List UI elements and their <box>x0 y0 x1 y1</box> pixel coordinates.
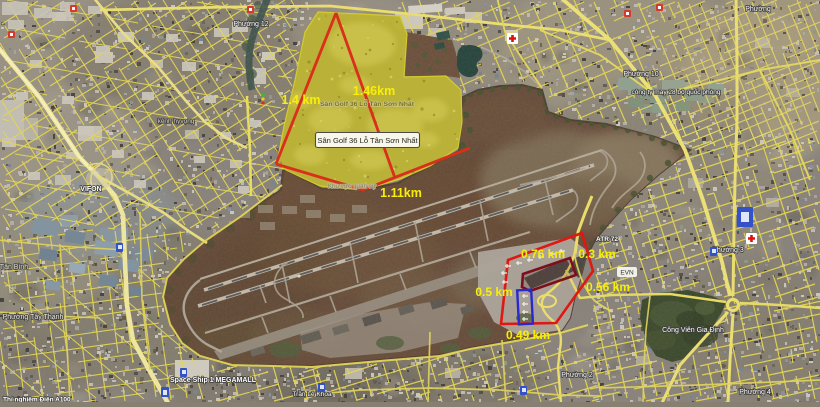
svg-text:1.46km: 1.46km <box>353 84 395 98</box>
svg-text:0.5 km: 0.5 km <box>475 285 512 299</box>
svg-text:EVN: EVN <box>620 270 634 277</box>
svg-text:kênh hyvọng: kênh hyvọng <box>158 118 195 125</box>
svg-text:ATR 72: ATR 72 <box>596 236 618 243</box>
svg-text:Thí nghiệm Điện A100: Thí nghiệm Điện A100 <box>3 397 71 403</box>
svg-text:Sân Golf 36 Lỗ Tân Sơn Nhất: Sân Golf 36 Lỗ Tân Sơn Nhất <box>317 136 418 145</box>
svg-text:Phường 12: Phường 12 <box>233 21 268 28</box>
svg-text:Phường 4: Phường 4 <box>739 389 771 396</box>
svg-text:VIFON: VIFON <box>80 186 101 193</box>
svg-text:0.3 km: 0.3 km <box>578 247 615 261</box>
svg-text:Trần Lê Khoa: Trần Lê Khoa <box>292 389 332 398</box>
svg-text:Phường 3: Phường 3 <box>712 247 744 254</box>
svg-text:0.76 km: 0.76 km <box>521 247 565 261</box>
svg-text:Phường: Phường <box>745 6 771 13</box>
svg-text:Công Viên Gia Định: Công Viên Gia Định <box>662 327 724 334</box>
svg-text:Sân Golf 36 Lỗ Tân Sơn Nhất: Sân Golf 36 Lỗ Tân Sơn Nhất <box>320 99 415 108</box>
svg-text:công ty may 28 bộ quốc phòng: công ty may 28 bộ quốc phòng <box>632 87 721 96</box>
svg-text:Khu vực quân sự: Khu vực quân sự <box>328 183 377 190</box>
svg-text:Tân Bình: Tân Bình <box>0 264 28 271</box>
svg-text:Phường Tây Thạnh: Phường Tây Thạnh <box>3 314 64 321</box>
svg-text:Space Ship 1 MEGAMALL: Space Ship 1 MEGAMALL <box>170 377 257 384</box>
svg-text:1.4 km: 1.4 km <box>282 93 321 107</box>
svg-text:Phường 10: Phường 10 <box>623 71 658 78</box>
svg-text:Phường 2: Phường 2 <box>561 372 593 379</box>
svg-text:0.49 km: 0.49 km <box>506 328 550 342</box>
svg-text:1.11km: 1.11km <box>380 186 422 200</box>
svg-text:0.56 km: 0.56 km <box>586 280 630 294</box>
